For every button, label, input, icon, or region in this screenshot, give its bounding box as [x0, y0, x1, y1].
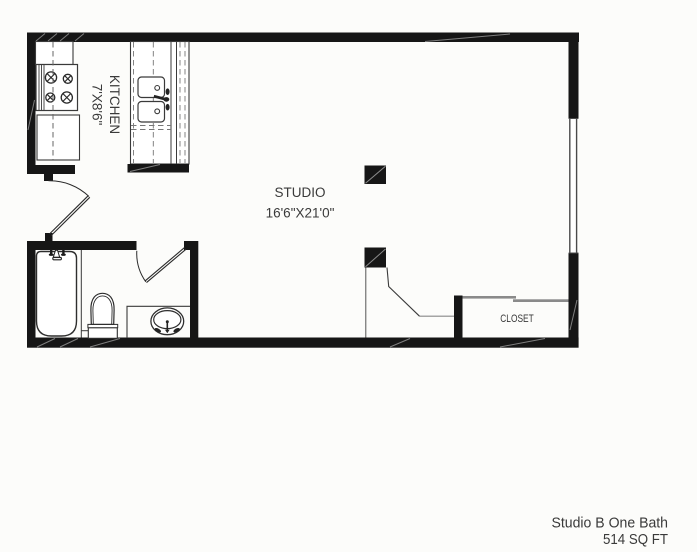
svg-text:514 SQ FT: 514 SQ FT [603, 531, 668, 548]
svg-text:STUDIO: STUDIO [274, 185, 325, 200]
svg-text:Studio B One Bath: Studio B One Bath [552, 515, 669, 532]
svg-text:KITCHEN: KITCHEN [107, 75, 122, 134]
svg-text:CLOSET: CLOSET [500, 313, 534, 325]
svg-text:7'X8'6": 7'X8'6" [90, 84, 105, 126]
svg-text:16'6"X21'0": 16'6"X21'0" [266, 206, 335, 221]
